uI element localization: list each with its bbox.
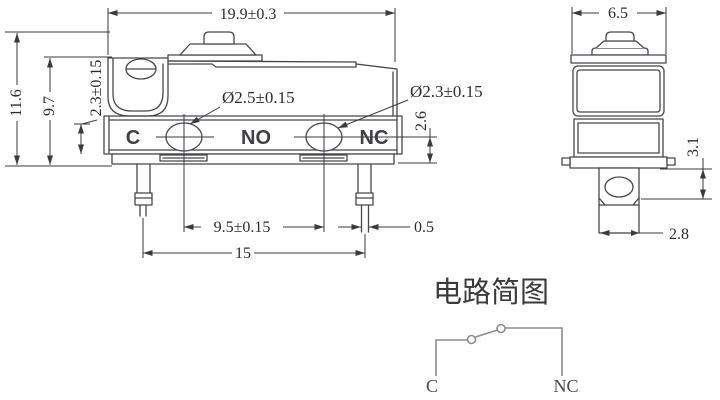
circuit-label-nc: NC — [553, 376, 578, 396]
dim-hole1-diameter-label: Ø2.5±0.15 — [222, 88, 295, 107]
dim-terminal-height-label: 3.1 — [685, 137, 702, 157]
dim-hole-offset: 2.3±0.15 — [74, 60, 105, 154]
dim-pin-spacing-label: 15 — [235, 245, 251, 262]
dim-side-width-label: 6.5 — [608, 5, 628, 22]
terminal-label-c: C — [126, 127, 140, 149]
front-view: C NO NC 19.9±0.3 11.6 9.7 — [5, 6, 483, 262]
mount-hook-right — [667, 158, 675, 165]
dim-terminal-width-label: 2.8 — [669, 226, 689, 243]
pin-left — [135, 164, 152, 216]
circuit-switch-blade — [476, 330, 498, 337]
dim-pin-thickness-label: 0.5 — [414, 219, 434, 236]
circuit-branch-nc — [505, 328, 562, 376]
circuit-contact-pivot — [468, 336, 476, 344]
mount-hook-left — [562, 158, 570, 165]
microswitch-datasheet-drawing: C NO NC 19.9±0.3 11.6 9.7 — [0, 0, 720, 400]
side-terminal-tab — [599, 168, 639, 233]
circuit-diagram: 电路简图 C NC — [426, 276, 579, 396]
side-plunger — [592, 48, 648, 55]
dim-overall-width-label: 19.9±0.3 — [220, 6, 277, 23]
terminal-label-nc: NC — [360, 127, 389, 149]
pin-right — [356, 164, 373, 232]
dim-hole-spacing: 9.5±0.15 — [184, 219, 324, 236]
circuit-contact-nc — [497, 325, 505, 333]
circuit-label-c: C — [426, 376, 438, 396]
circuit-branch-c — [436, 340, 467, 376]
dim-body-height-label: 9.7 — [41, 96, 58, 116]
plunger — [168, 32, 262, 61]
dim-hole-spacing-label: 9.5±0.15 — [214, 219, 271, 236]
dim-total-height-label: 11.6 — [8, 89, 25, 116]
dim-pin-thickness: 0.5 — [338, 219, 434, 236]
dim-hole2-diameter-label: Ø2.3±0.15 — [410, 82, 483, 101]
side-view: 6.5 3.1 2.8 — [562, 5, 712, 243]
dim-center-to-bottom-label: 2.6 — [413, 111, 430, 131]
dim-hole-offset-label: 2.3±0.15 — [88, 60, 105, 117]
side-body — [562, 32, 675, 233]
circuit-title: 电路简图 — [433, 276, 549, 309]
terminal-label-no: NO — [241, 127, 271, 149]
drawing-canvas: C NO NC 19.9±0.3 11.6 9.7 — [0, 0, 720, 400]
